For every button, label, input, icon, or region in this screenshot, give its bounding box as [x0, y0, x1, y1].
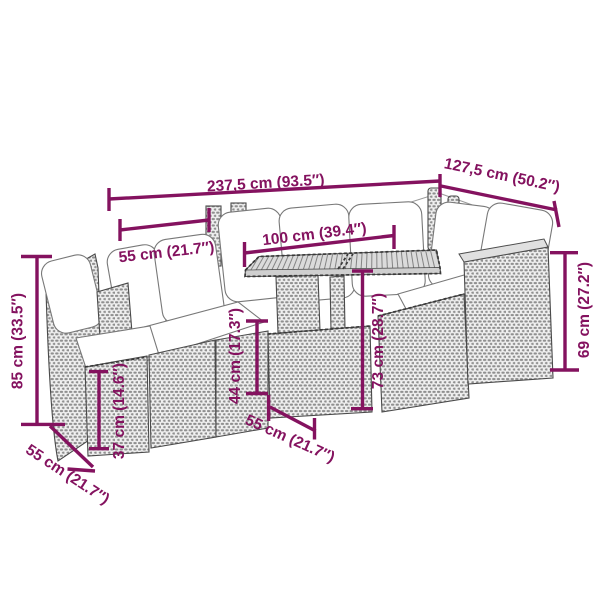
svg-text:44 cm (17.3″): 44 cm (17.3″): [227, 308, 244, 404]
svg-text:69 cm (27.2″): 69 cm (27.2″): [576, 262, 593, 358]
svg-text:85 cm (33.5″): 85 cm (33.5″): [10, 293, 27, 389]
svg-text:73 cm (28.7″): 73 cm (28.7″): [370, 293, 387, 389]
svg-text:37 cm (14.6″): 37 cm (14.6″): [111, 363, 128, 459]
